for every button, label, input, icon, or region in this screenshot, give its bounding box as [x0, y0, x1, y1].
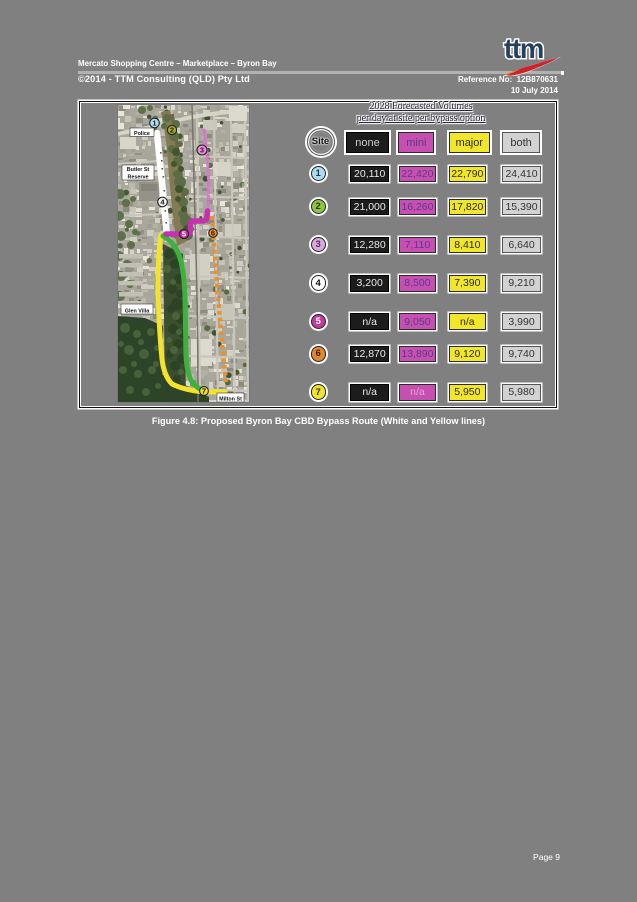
svg-text:3: 3	[200, 146, 204, 155]
svg-text:Milton St: Milton St	[219, 397, 242, 403]
svg-text:ttm: ttm	[504, 33, 543, 64]
svg-text:Reserve: Reserve	[128, 175, 149, 181]
svg-text:Butler St: Butler St	[127, 167, 150, 173]
svg-text:6: 6	[211, 229, 215, 238]
svg-text:7: 7	[202, 387, 206, 396]
svg-text:5: 5	[182, 230, 186, 239]
svg-text:2: 2	[170, 126, 174, 135]
svg-text:Police: Police	[134, 131, 150, 137]
svg-text:Glen Villa: Glen Villa	[125, 309, 150, 315]
svg-text:1: 1	[152, 119, 156, 128]
